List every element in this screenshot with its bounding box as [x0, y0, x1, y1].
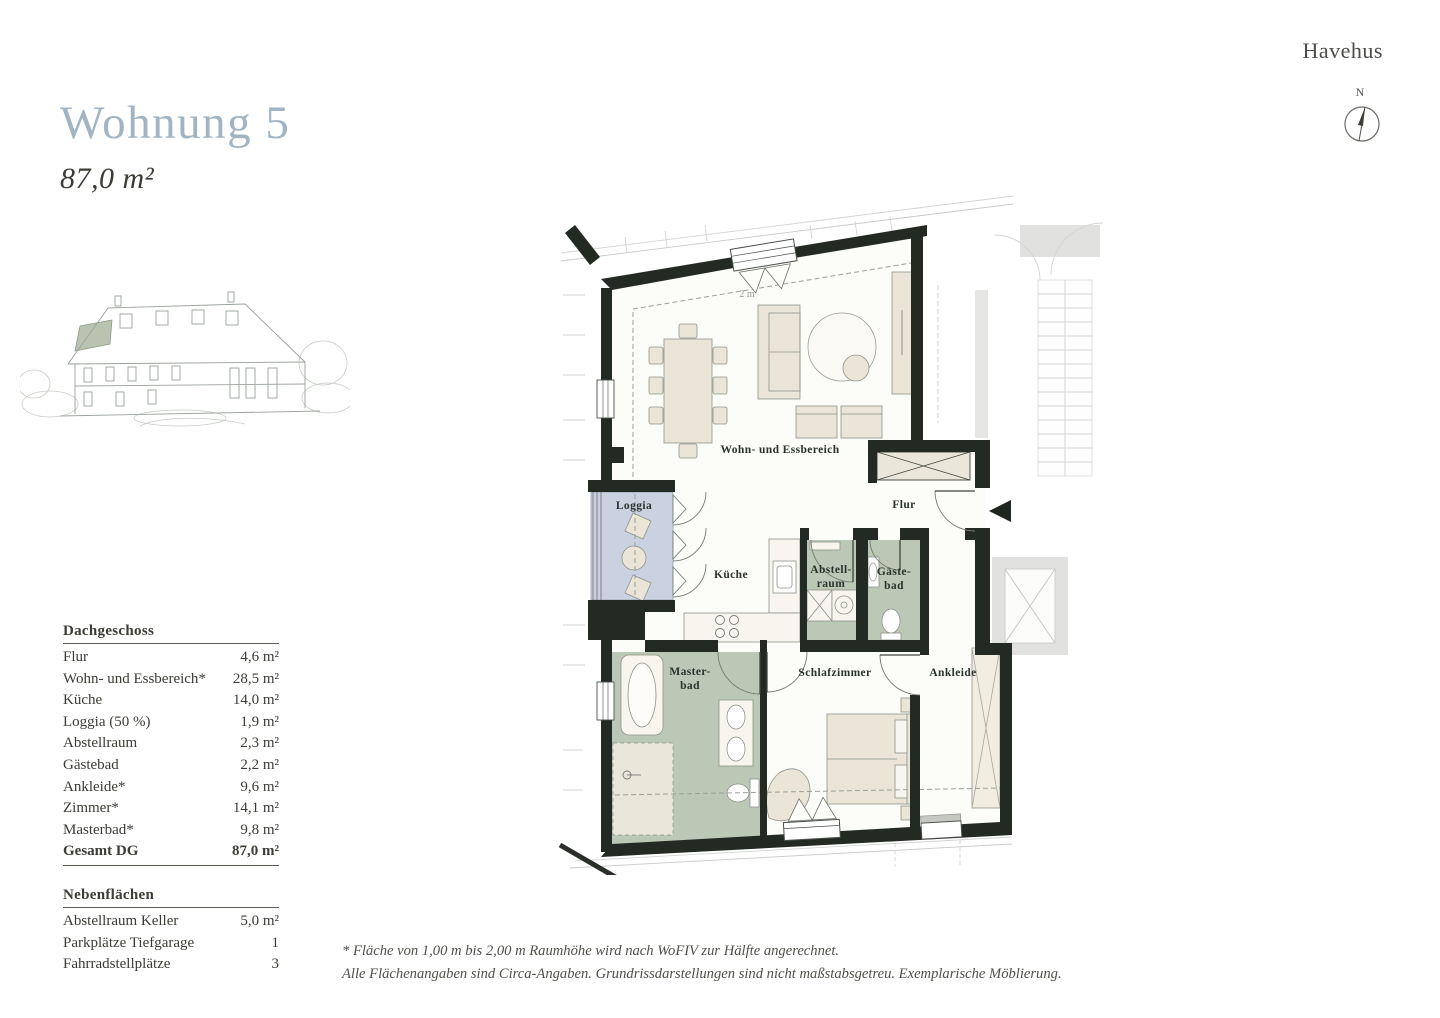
table-row: Küche14,0 m² [63, 690, 279, 712]
bed [827, 698, 919, 820]
table-row: Abstellraum Keller5,0 m² [63, 911, 279, 933]
brand-logo: Havehus [1303, 38, 1383, 64]
area-tables: Dachgeschoss Flur4,6 m² Wohn- und Essber… [63, 623, 279, 976]
brochure-page: Havehus Wohnung 5 87,0 m² N [0, 0, 1440, 1018]
footnote-line2: Alle Flächenangaben sind Circa-Angaben. … [342, 963, 1062, 986]
duct-shaft [877, 452, 970, 480]
table-row: Ankleide*9,6 m² [63, 777, 279, 799]
page-title: Wohnung 5 [60, 96, 290, 150]
window-living-left [597, 380, 614, 418]
compass-icon: N [1330, 78, 1394, 148]
side-table [843, 355, 869, 381]
window-masterbad-left [597, 682, 614, 720]
table-row: Flur4,6 m² [63, 647, 279, 669]
table-row: Loggia (50 %)1,9 m² [63, 712, 279, 734]
table-row: Gästebad2,2 m² [63, 755, 279, 777]
label-gaestebad: Gäste- [877, 566, 911, 578]
table-total-row: Gesamt DG87,0 m² [63, 841, 279, 866]
house-sketch [60, 292, 320, 416]
table-row: Wohn- und Essbereich*28,5 m² [63, 669, 279, 691]
label-abstellraum: Abstell- [810, 564, 852, 576]
label-flur: Flur [892, 499, 915, 511]
floor-plan: Wohn- und Essbereich Flur Loggia Küche A… [555, 195, 1115, 875]
table-row: Fahrradstellplätze3 [63, 954, 279, 976]
communal-stair [1038, 280, 1092, 476]
label-schlafzimmer: Schlafzimmer [798, 667, 871, 679]
compass-north-label: N [1356, 85, 1365, 99]
secondary-table-header: Nebenflächen [63, 887, 279, 908]
svg-text:bad: bad [680, 680, 700, 692]
table-row: Zimmer*14,1 m² [63, 798, 279, 820]
label-loggia: Loggia [616, 500, 652, 512]
label-living: Wohn- und Essbereich [721, 444, 840, 456]
window-ankleide-bottom [921, 814, 962, 839]
table-row: Masterbad*9,8 m² [63, 820, 279, 842]
label-2m-line: 2 m [739, 289, 755, 300]
label-ankleide: Ankleide [929, 667, 976, 679]
elevator-shaft [992, 557, 1068, 655]
table-row: Parkplätze Tiefgarage1 [63, 933, 279, 955]
svg-text:bad: bad [884, 580, 904, 592]
entrance-arrow-icon [989, 500, 1011, 522]
sideboard [892, 272, 912, 394]
label-kueche: Küche [714, 569, 748, 581]
total-area: 87,0 m² [60, 162, 154, 196]
area-table-header: Dachgeschoss [63, 623, 279, 644]
table-row: Abstellraum2,3 m² [63, 733, 279, 755]
label-masterbad: Master- [669, 666, 710, 678]
footnote-line1: * Fläche von 1,00 m bis 2,00 m Raumhöhe … [342, 940, 1062, 963]
footnotes: * Fläche von 1,00 m bis 2,00 m Raumhöhe … [342, 940, 1062, 985]
shower-area [613, 743, 673, 835]
svg-text:raum: raum [817, 578, 845, 590]
building-illustration [20, 266, 350, 431]
sofa [758, 305, 800, 399]
